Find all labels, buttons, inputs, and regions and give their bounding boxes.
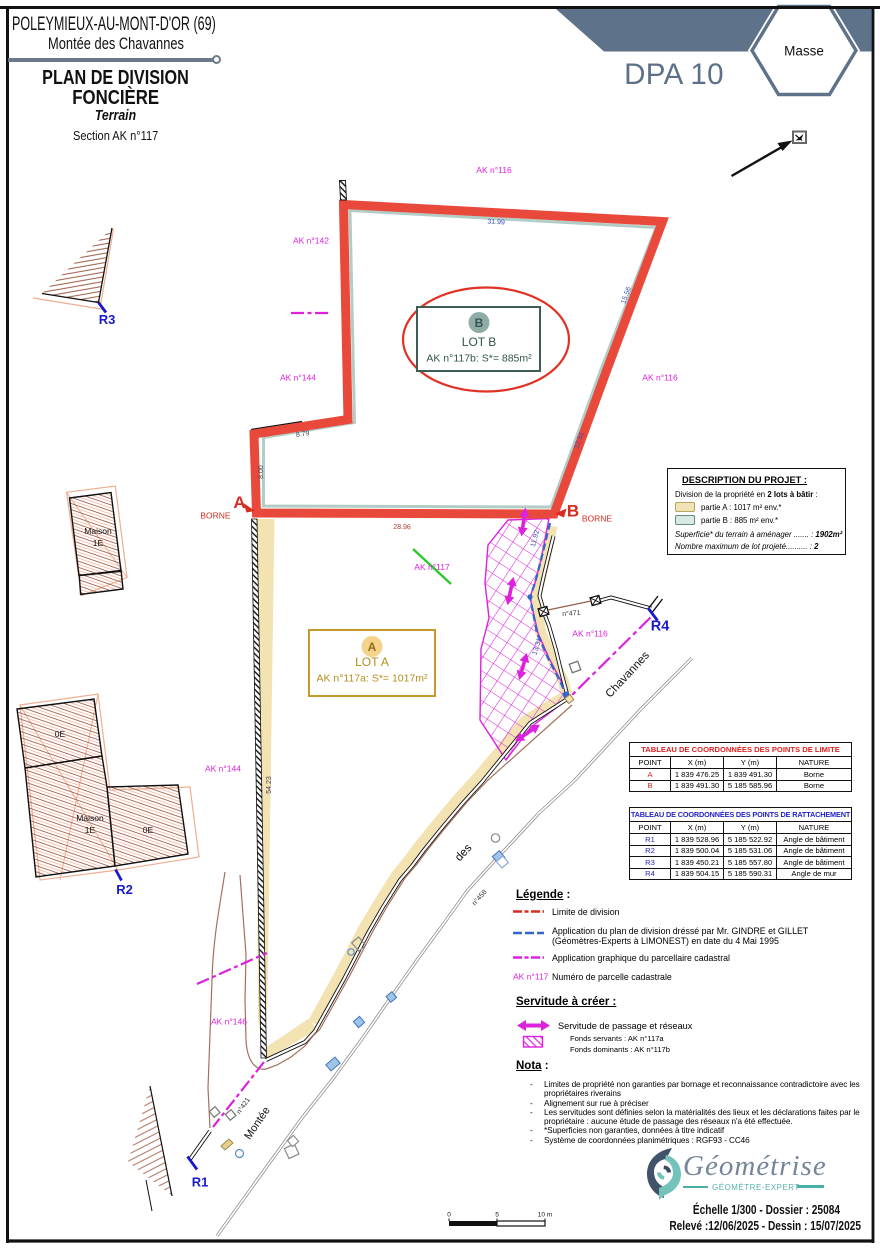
svg-text:AK n°117: AK n°117 <box>513 972 549 982</box>
